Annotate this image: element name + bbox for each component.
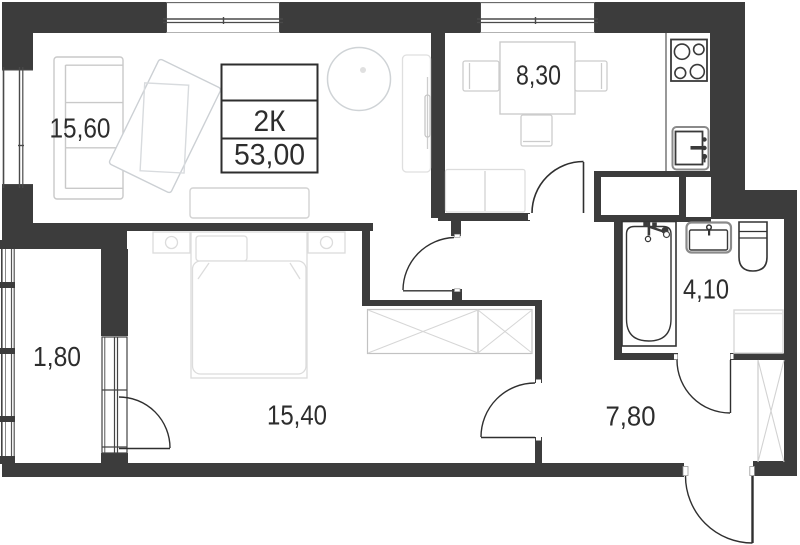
- svg-text:8,30: 8,30: [516, 60, 561, 91]
- svg-text:53,00: 53,00: [234, 139, 305, 172]
- svg-text:7,80: 7,80: [606, 401, 656, 432]
- svg-text:15,40: 15,40: [267, 400, 327, 431]
- svg-text:15,60: 15,60: [50, 113, 111, 144]
- svg-text:4,10: 4,10: [683, 274, 729, 305]
- svg-text:2К: 2К: [254, 105, 286, 138]
- svg-text:1,80: 1,80: [33, 341, 81, 372]
